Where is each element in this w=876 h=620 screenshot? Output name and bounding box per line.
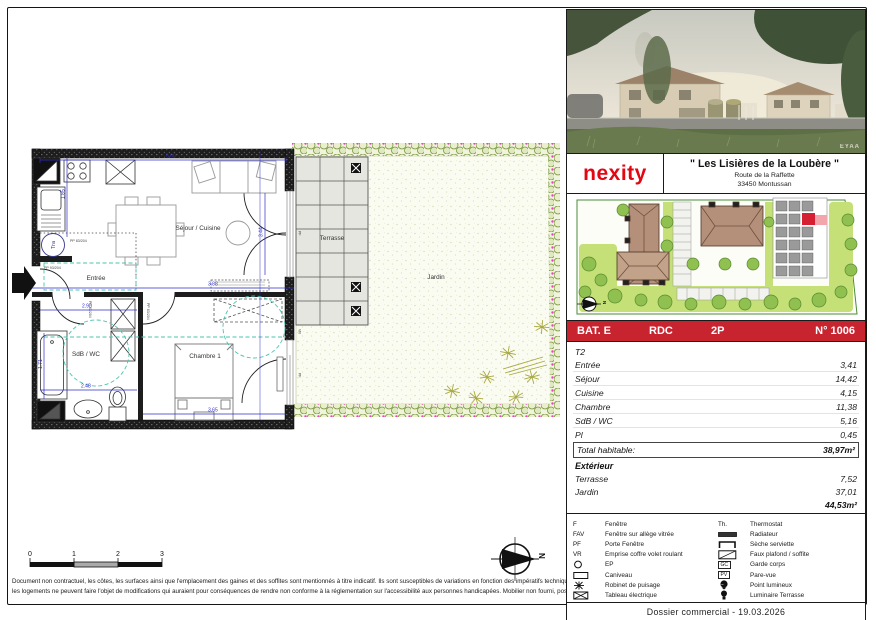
table-row: Terrasse 7,52 [573,472,859,485]
row-label: Terrasse [575,474,608,484]
faux-plafond-icon [718,550,750,560]
entree-label: Entrée [87,275,106,282]
exterior-title: Extérieur [573,459,859,472]
jardin-label: Jardin [427,274,445,281]
type-label: 2P [711,325,815,337]
nexity-logo: nexity [583,162,647,186]
thermostat-symbol: Th. [718,521,750,528]
scale-tick-1: 1 [72,551,76,558]
tra-label: Tra [51,240,57,249]
seche-serviette-icon [718,540,750,549]
row-value: 37,01 [835,487,857,497]
floor-plan-drawing: Jardin Terrasse [8,141,560,443]
dossier-date-label: Dossier commercial - 19.03.2026 [647,607,785,617]
terrasse-label: Terrasse [320,235,345,242]
terrasse-area: Terrasse [296,157,368,325]
tableau-electrique-icon [573,591,605,600]
row-value: 0,45 [840,430,857,440]
panel-header: nexity " Les Lisières de la Loubère " Ro… [566,153,866,194]
exterior-total: 44,53m² [573,498,859,511]
floor-label: RDC [649,325,711,337]
row-label: SdB / WC [575,416,613,426]
row-value: 5,16 [840,416,857,426]
dim-2-90: 2.90 [82,304,92,310]
table-row: Séjour 14,42 [573,372,859,386]
row-label: Chambre [575,402,610,412]
legend-right-column: Th.Thermostat Radiateur Sèche serviette … [718,519,863,600]
compass-n-label: N [537,553,546,559]
legend: FFenêtre FAVFenêtre sur allège vitrée PF… [566,513,866,603]
row-value: 4,15 [840,388,857,398]
pp-entry-label: PP 93/204 [44,266,61,270]
unit-type-row: T2 [573,345,859,358]
scale-tick-2: 2 [116,551,120,558]
site-compass-n-label: N [602,301,607,304]
program-title: " Les Lisières de la Loubère " [664,158,865,170]
luminaire-terrasse-icon [718,590,750,600]
pare-vue-symbol: PV [718,571,730,580]
info-panel: EYAA nexity " Les Lisières de la Loubère… [566,10,866,620]
scale-tick-0: 0 [28,551,32,558]
table-row: Cuisine 4,15 [573,386,859,400]
scale-bar: 0 1 2 3 [26,548,176,576]
total-label: Total habitable: [577,445,635,455]
vr-symbol: VR [573,551,605,558]
dim-2-48: 2.48 [81,384,91,390]
pf-label-sejour: PF [298,231,302,236]
table-row: SdB / WC 5,16 [573,414,859,428]
title-cell: " Les Lisières de la Loubère " Route de … [664,154,865,193]
row-label: Jardin [575,487,598,497]
pp-int-label-1: PP 83/204 [146,303,150,320]
highlighted-unit [802,213,815,225]
dim-5-60: 5.60 [166,154,176,160]
row-value: 3,41 [840,360,857,370]
building-horizontal-bottom [617,252,669,285]
sejour-label: Séjour / Cuisine [175,225,221,232]
table-row: Entrée 3,41 [573,358,859,372]
areas-table: T2 Entrée 3,41 Séjour 14,42 Cuisine 4,15… [566,341,866,514]
bathroom-fixtures [37,299,135,422]
render-illustration [567,10,865,153]
washbasin-icon [74,400,102,418]
fav-symbol: FAV [573,531,605,538]
render-watermark: EYAA [840,144,860,150]
brand-cell: nexity [567,154,664,193]
pp-tra-label: PP 83/204 [70,239,87,243]
ep-circle-icon [573,560,605,569]
row-value: 14,42 [835,374,857,384]
building-label: BAT. E [577,325,649,337]
dim-3-65: 3.65 [208,408,218,414]
row-label: Cuisine [575,388,604,398]
unit-block [773,198,827,278]
building-horizontal-top [701,202,763,246]
chambre-label: Chambre 1 [189,353,221,360]
row-label: Séjour [575,374,600,384]
dim-1-85: 1.85 [61,189,67,199]
row-label: Entrée [575,360,600,370]
radiateur-icon [718,530,750,539]
closet-icon [111,299,135,361]
radiator-chambre-icon [277,357,283,391]
pf-label: PF [298,373,302,378]
row-value: 11,38 [836,402,857,412]
table-row: Pl 0,45 [573,428,859,441]
tra-closet: Tra PP 83/204 [42,234,87,257]
caniveau-icon [573,571,605,580]
wc-icon [109,387,126,421]
sdb-label: SdB / WC [72,351,100,358]
dossier-footer: Dossier commercial - 19.03.2026 [566,602,866,620]
floorplan-document-page: Jardin Terrasse [0,0,876,620]
technical-shaft-icon [33,158,60,184]
row-label: Pl [575,430,583,440]
total-row: Total habitable: 38,97m² [573,442,859,458]
program-address-1: Route de la Raffette [664,172,865,180]
program-address-2: 33450 Montussan [664,181,865,189]
unit-number-label: N° 1006 [815,325,855,337]
unit-identity-bar: BAT. E RDC 2P N° 1006 [566,320,866,342]
dining-table-icon [108,197,184,265]
dim-3-88: 3.88 [208,282,218,288]
row-value: 7,52 [840,474,857,484]
scale-tick-3: 3 [160,551,164,558]
garde-corps-symbol: GC [718,561,731,570]
vr-label: VR [298,329,302,334]
table-row: Chambre 11,38 [573,400,859,414]
dim-3-44: 3.44 [259,227,265,237]
legend-left-column: FFenêtre FAVFenêtre sur allège vitrée PF… [573,519,718,600]
sofa-icon [192,161,276,193]
site-plan-drawing: N [567,194,865,320]
site-plan: N [566,193,866,321]
robinet-icon [573,581,605,590]
stove-icon [64,160,90,182]
pf-symbol: PF [573,541,605,548]
point-lumineux-icon [718,580,750,590]
shaft-icon [37,401,65,422]
dim-1-71: 1.71 [38,359,44,369]
table-row: Jardin 37,01 [573,485,859,498]
coffee-table-icon [226,221,250,245]
total-value: 38,97m² [823,445,855,455]
window-symbol: F [573,521,605,528]
hood-icon [106,160,135,184]
project-render-photo: EYAA [566,9,866,154]
